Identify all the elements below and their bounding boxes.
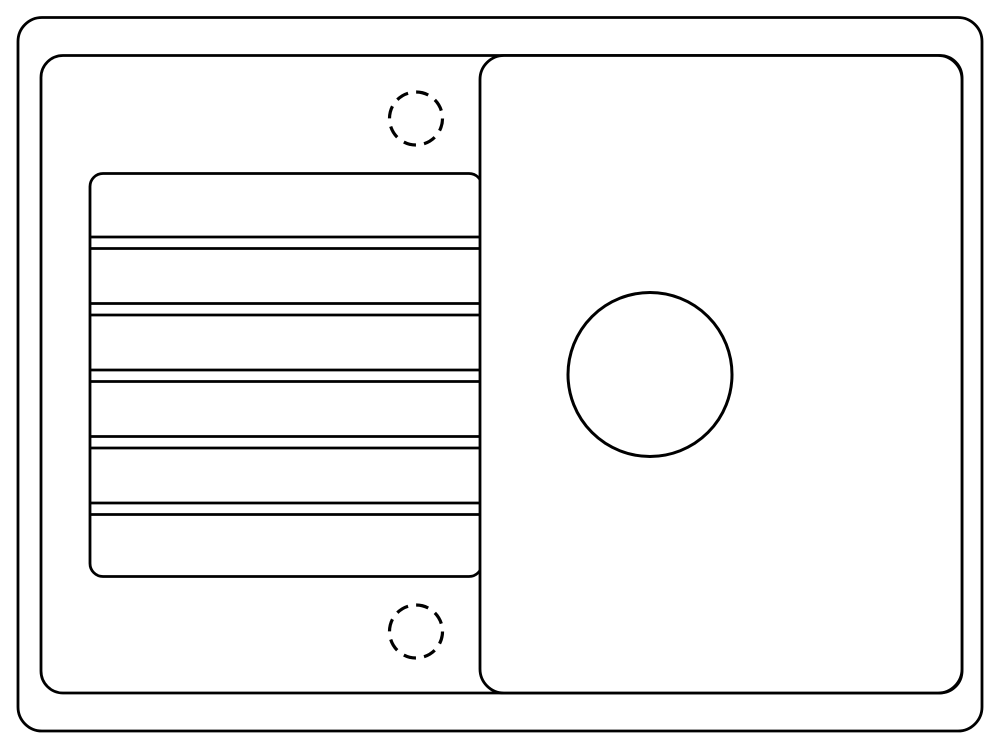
tap-hole-top	[390, 92, 443, 145]
drainboard-outline	[90, 174, 482, 577]
sink-diagram-svg	[0, 0, 1000, 740]
tap-hole-bottom	[390, 605, 443, 658]
bowl-outline	[480, 56, 962, 694]
sink-technical-drawing	[0, 0, 1000, 740]
